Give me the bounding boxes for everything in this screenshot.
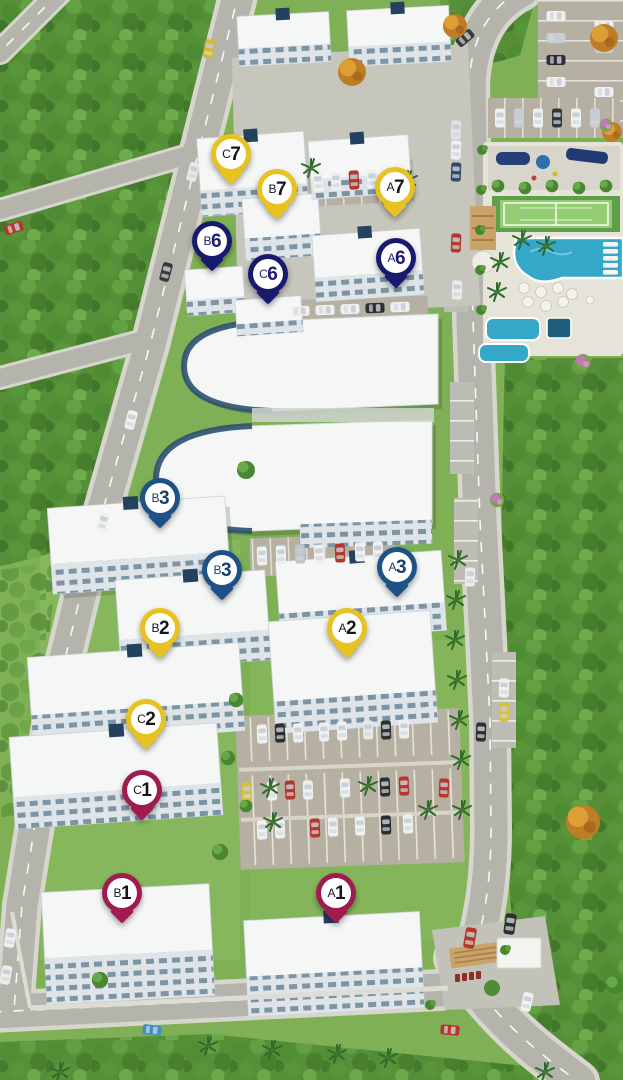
masterplan-scene [0,0,623,1080]
map-pin-B6[interactable]: B6 [192,221,232,261]
pin-label: B3 [207,555,237,585]
curved-hall-north [184,314,442,416]
pin-label: A3 [382,552,412,582]
playground [488,146,620,194]
tennis-court [492,196,620,232]
pin-label: C7 [216,139,246,169]
pin-label: B1 [107,878,137,908]
map-pin-C7[interactable]: C7 [211,134,251,174]
map-pin-B1[interactable]: B1 [102,873,142,913]
map-pin-B3-north[interactable]: B3 [140,478,180,518]
map-pin-A2[interactable]: A2 [327,608,367,648]
hall-connector [252,408,434,422]
pin-label: C2 [131,704,161,734]
pin-label: B2 [145,613,175,643]
pin-label: A2 [332,613,362,643]
pin-label: A7 [380,172,410,202]
amenity-zone [470,142,623,362]
map-pin-A6[interactable]: A6 [376,238,416,278]
map-pin-B3-south[interactable]: B3 [202,550,242,590]
map-pin-A7[interactable]: A7 [375,167,415,207]
map-pin-A1[interactable]: A1 [316,873,356,913]
pin-label: B6 [197,226,227,256]
pin-label: B3 [145,483,175,513]
pin-label: A6 [381,243,411,273]
swimming-pool [514,238,623,282]
map-pin-C1[interactable]: C1 [122,770,162,810]
masterplan-stage: C7B7A7B6C6A6B3B3A3B2A2C2C1B1A1 [0,0,623,1080]
pin-label: B7 [262,174,292,204]
map-pin-B2[interactable]: B2 [140,608,180,648]
pin-label: A1 [321,878,351,908]
building-block-7-east [346,0,451,67]
map-pin-A3[interactable]: A3 [377,547,417,587]
pin-label: C1 [127,775,157,805]
pool-bar [470,206,496,273]
map-pin-C2[interactable]: C2 [126,699,166,739]
map-pin-C6[interactable]: C6 [248,254,288,294]
map-pin-B7[interactable]: B7 [257,169,297,209]
pin-label: C6 [253,259,283,289]
